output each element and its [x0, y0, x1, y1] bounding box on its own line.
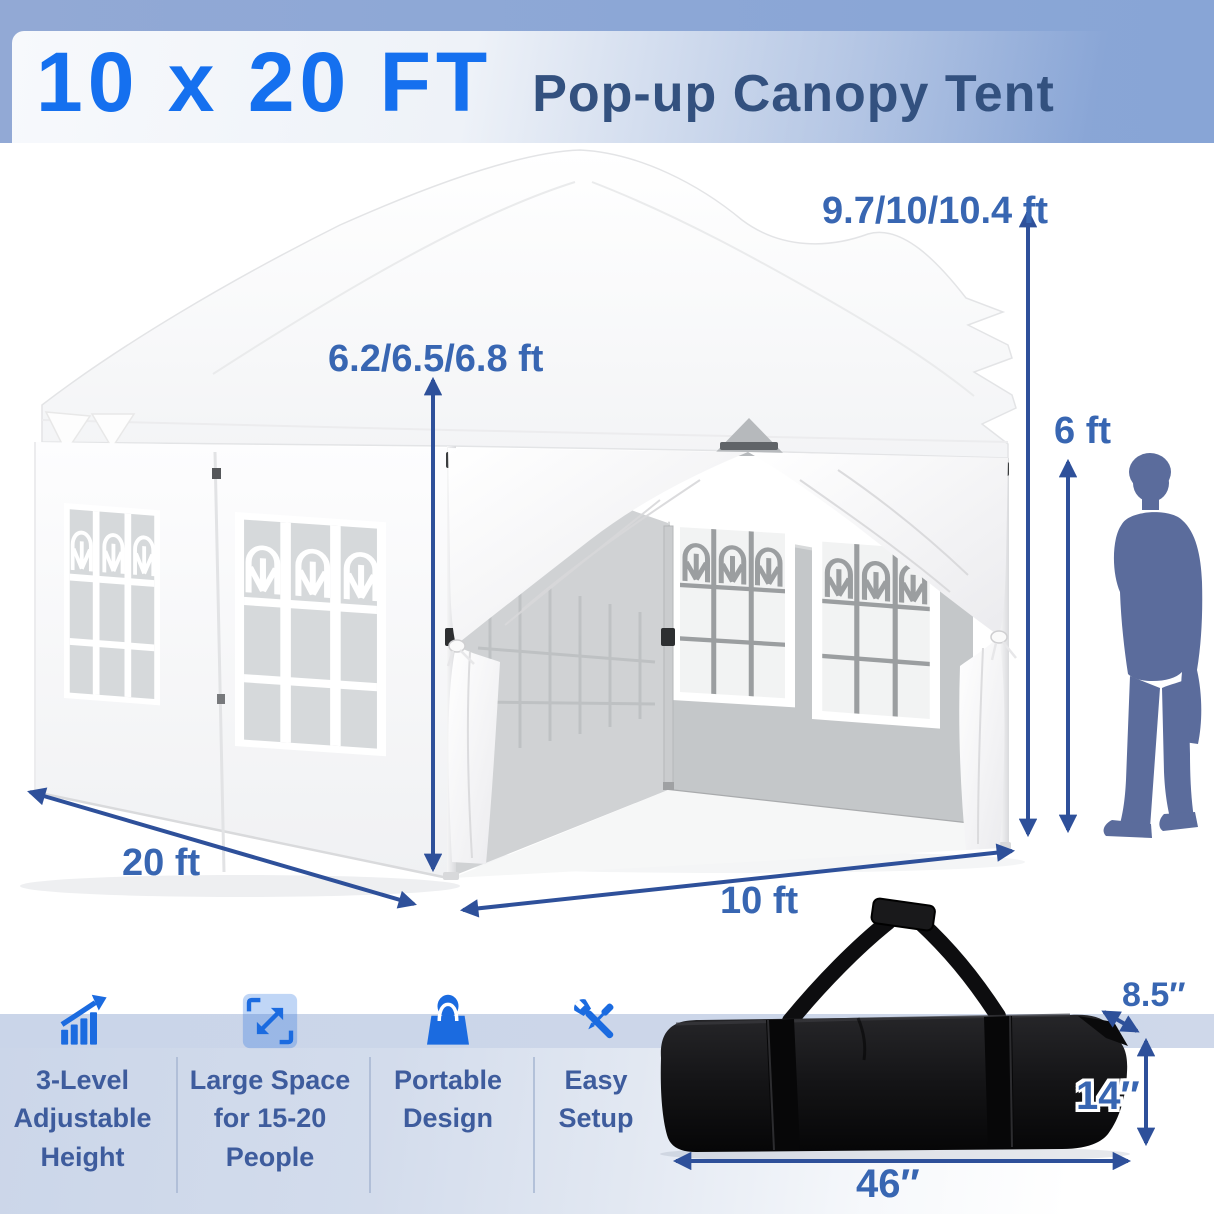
- bag-height-label: 14″: [1076, 1074, 1140, 1119]
- tote-bag-icon: [420, 993, 476, 1049]
- person-silhouette: [1104, 453, 1203, 838]
- feature-label: Large Space for 15-20 People: [185, 1061, 355, 1176]
- features-strip: 3-Level Adjustable Height Large Space fo…: [0, 1014, 1214, 1214]
- front-width-label: 10 ft: [720, 880, 798, 923]
- tent-size-title: 10 x 20 FT: [36, 34, 492, 131]
- feature-divider: [369, 1057, 371, 1193]
- tent-left-sidewall: [35, 442, 448, 878]
- feature-large-space: Large Space for 15-20 People: [185, 993, 355, 1176]
- side-length-arrow: [30, 792, 414, 904]
- feature-label: 3-Level Adjustable Height: [5, 1061, 160, 1176]
- person-height-label: 6 ft: [1054, 410, 1111, 453]
- door-curtains: [448, 448, 1016, 864]
- peak-height-label: 9.7/10/10.4 ft: [822, 190, 1048, 233]
- side-length-label: 20 ft: [122, 842, 200, 885]
- bag-length-label: 46″: [856, 1162, 920, 1207]
- feature-portable: Portable Design: [380, 993, 516, 1138]
- tent-interior: [448, 446, 1004, 878]
- growth-chart-icon: [55, 993, 111, 1049]
- product-name-title: Pop-up Canopy Tent: [532, 64, 1055, 124]
- expand-arrows-icon: [242, 993, 298, 1049]
- curtain-ties: [448, 631, 1016, 666]
- feature-label: Portable Design: [380, 1061, 516, 1138]
- feature-divider: [533, 1057, 535, 1193]
- tools-icon: [568, 993, 624, 1049]
- bag-depth-label: 8.5″: [1122, 976, 1186, 1015]
- feature-divider: [176, 1057, 178, 1193]
- door-apex: [712, 418, 786, 456]
- side-height-label: 6.2/6.5/6.8 ft: [328, 338, 543, 381]
- canopy-tent-infographic: 10 x 20 FT Pop-up Canopy Tent 3-Level Ad…: [0, 0, 1214, 1214]
- header: 10 x 20 FT Pop-up Canopy Tent: [0, 0, 1214, 143]
- feature-adjustable-height: 3-Level Adjustable Height: [5, 993, 160, 1176]
- tent-poles: [443, 446, 1011, 880]
- feature-easy-setup: Easy Setup: [540, 993, 652, 1138]
- feature-label: Easy Setup: [540, 1061, 652, 1138]
- page-title: 10 x 20 FT Pop-up Canopy Tent: [36, 34, 1055, 131]
